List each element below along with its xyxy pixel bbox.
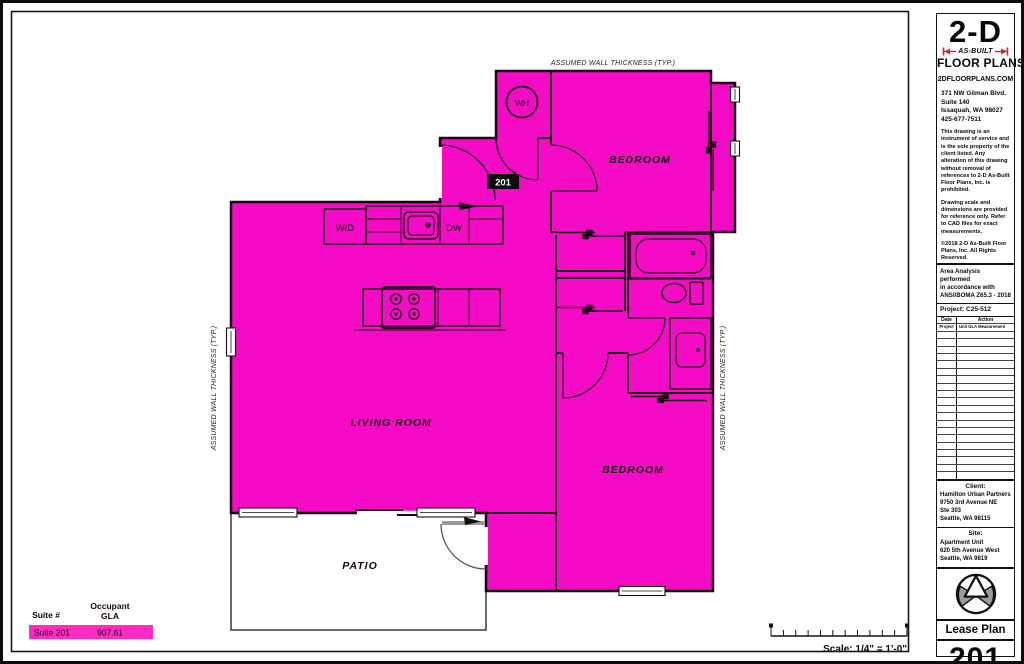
washer-dryer-label: W/D <box>336 223 355 234</box>
revision-row <box>937 353 1014 360</box>
address-line: Suite 140 <box>941 99 1010 107</box>
revision-header-row: Date Action <box>937 317 1014 323</box>
revision-row <box>937 456 1014 463</box>
revision-row <box>937 405 1014 412</box>
revision-row <box>937 383 1014 390</box>
revision-row <box>937 464 1014 471</box>
site-label: Site: <box>937 527 1014 539</box>
patio-label: PATIO <box>342 560 378 572</box>
revision-action-header: Action <box>957 317 1014 323</box>
client-line: Ste 303 <box>937 508 1014 516</box>
titleblock: 2-D AS-BUILT FLOOR PLANS 2DFLOORPLANS.CO… <box>936 13 1015 657</box>
revision-row <box>937 360 1014 367</box>
bedroom1-label: BEDROOM <box>609 154 671 166</box>
revision-row <box>937 346 1014 353</box>
wall-thickness-label-right: ASSUMED WALL THICKNESS (TYP.) <box>720 326 727 451</box>
company-website: 2DFLOORPLANS.COM <box>937 76 1014 83</box>
site-line: Seattle, WA 9819 <box>937 556 1014 564</box>
north-arrow-icon <box>950 569 1002 619</box>
scale-bar <box>770 624 909 636</box>
living-room-label: LIVING ROOM <box>350 417 432 429</box>
scale-label: Scale: 1/4" = 1'-0" <box>823 644 907 655</box>
unit-tag-label: 201 <box>495 178 512 189</box>
revision-date: Project <box>937 324 957 331</box>
revision-row <box>937 390 1014 397</box>
area-analysis-line: Area Analysis performed <box>940 268 1011 284</box>
revision-row: Project Unit GLA Measurement <box>937 323 1014 331</box>
disclaimer-text: This drawing is an instrument of service… <box>937 129 1014 194</box>
project-number: Project: C25-512 <box>937 303 1014 316</box>
revision-row <box>937 375 1014 382</box>
unit-footprint <box>231 71 735 591</box>
bedroom2-label: BEDROOM <box>602 464 664 476</box>
logo-2d-text: 2-D <box>937 17 1014 46</box>
area-analysis-note: Area Analysis performed in accordance wi… <box>937 265 1014 303</box>
dishwasher-label: DW <box>446 223 462 234</box>
sheet-title: Lease Plan <box>937 619 1014 639</box>
address-line: Issaquah, WA 98027 <box>941 107 1010 115</box>
sheet: 201 ASSUMED WALL THICKNESS (TYP.) ASSUME… <box>0 0 1024 664</box>
revision-row <box>937 442 1014 449</box>
logo-left-arrow-icon <box>942 47 957 56</box>
gla-header: GLA <box>101 611 119 621</box>
scale-disclaimer-text: Drawing scale and dimensions are provide… <box>937 200 1014 236</box>
suite-row-id: Suite 201 <box>34 628 70 638</box>
wall-thickness-label-left: ASSUMED WALL THICKNESS (TYP.) <box>211 326 218 451</box>
company-address: 371 NW Gilman Blvd. Suite 140 Issaquah, … <box>937 90 1014 124</box>
revision-row <box>937 331 1014 338</box>
copyright-text: ©2018 2-D As-Built Floor Plans, Inc. All… <box>937 241 1014 263</box>
site-line: 620 5th Avenue West <box>937 548 1014 556</box>
revision-row <box>937 397 1014 404</box>
suite-table: Suite # Occupant GLA Suite 201 907.61 <box>29 601 153 639</box>
logo-asbuilt-text: AS-BUILT <box>958 48 993 55</box>
sheet-number: 201 <box>937 639 1014 664</box>
revision-row <box>937 427 1014 434</box>
water-heater-label: WH <box>515 98 529 108</box>
occupant-header: Occupant <box>90 601 129 611</box>
address-line: 425-677-7511 <box>941 116 1010 124</box>
wall-thickness-label-top: ASSUMED WALL THICKNESS (TYP.) <box>550 60 675 67</box>
north-arrow-box <box>937 567 1014 619</box>
revision-row <box>937 412 1014 419</box>
client-site-box: Client: Hamilton Urban Partners 9750 3rd… <box>937 479 1014 567</box>
site-line: Apartment Unit <box>937 540 1014 548</box>
client-label: Client: <box>937 483 1014 492</box>
logo-right-arrow-icon <box>994 47 1009 56</box>
suite-col-header: Suite # <box>32 610 60 620</box>
revision-row <box>937 471 1014 478</box>
revision-row <box>937 368 1014 375</box>
revision-action: Unit GLA Measurement <box>957 324 1014 331</box>
revision-row <box>937 434 1014 441</box>
area-analysis-box: Area Analysis performed in accordance wi… <box>937 263 1014 479</box>
revision-table: Date Action Project Unit GLA Measurement <box>937 316 1014 479</box>
area-analysis-standard: ANSI/BOMA Z65.3 - 2018 <box>940 292 1011 300</box>
client-line: 9750 3rd Avenue NE <box>937 500 1014 508</box>
revision-date-header: Date <box>937 317 957 323</box>
floor-plan-drawing: 201 ASSUMED WALL THICKNESS (TYP.) ASSUME… <box>3 3 933 664</box>
revision-row <box>937 338 1014 345</box>
revision-row <box>937 420 1014 427</box>
logo-floorplans-text: FLOOR PLANS <box>937 57 1014 69</box>
suite-row-gla: 907.61 <box>97 628 123 638</box>
revision-row <box>937 449 1014 456</box>
client-line: Seattle, WA 98115 <box>937 516 1014 524</box>
client-line: Hamilton Urban Partners <box>937 492 1014 500</box>
address-line: 371 NW Gilman Blvd. <box>941 90 1010 98</box>
area-analysis-line: in accordance with <box>940 284 1011 292</box>
company-logo: 2-D AS-BUILT FLOOR PLANS <box>937 14 1014 69</box>
